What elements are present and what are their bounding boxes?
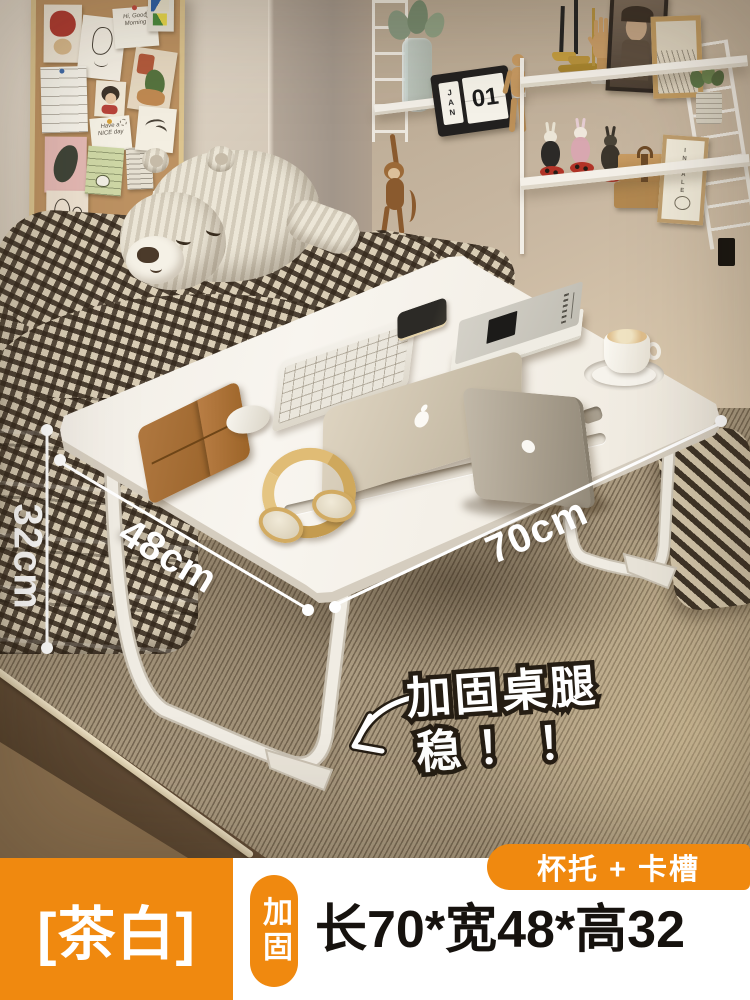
product-listing-image: Hi, Good Morning Have a NICE day xyxy=(0,0,750,1000)
product-dimensions-text: 长70*宽48*高32 xyxy=(270,898,730,962)
color-variant-label: [茶白] xyxy=(37,887,196,971)
bedroom-photo: Hi, Good Morning Have a NICE day xyxy=(0,0,750,858)
feature-tag: 杯托 + 卡槽 xyxy=(487,844,750,890)
color-variant-block: [茶白] xyxy=(0,858,233,1000)
feature-tag-label: 杯托 + 卡槽 xyxy=(537,846,700,888)
height-dimension-label: 32cm xyxy=(5,504,50,594)
reinforced-legs-callout: 加固桌腿 加固桌腿 稳！！ 稳！！ xyxy=(405,655,672,780)
info-banner: [茶白] 加固 长70*宽48*高32 杯托 + 卡槽 xyxy=(0,858,750,1000)
